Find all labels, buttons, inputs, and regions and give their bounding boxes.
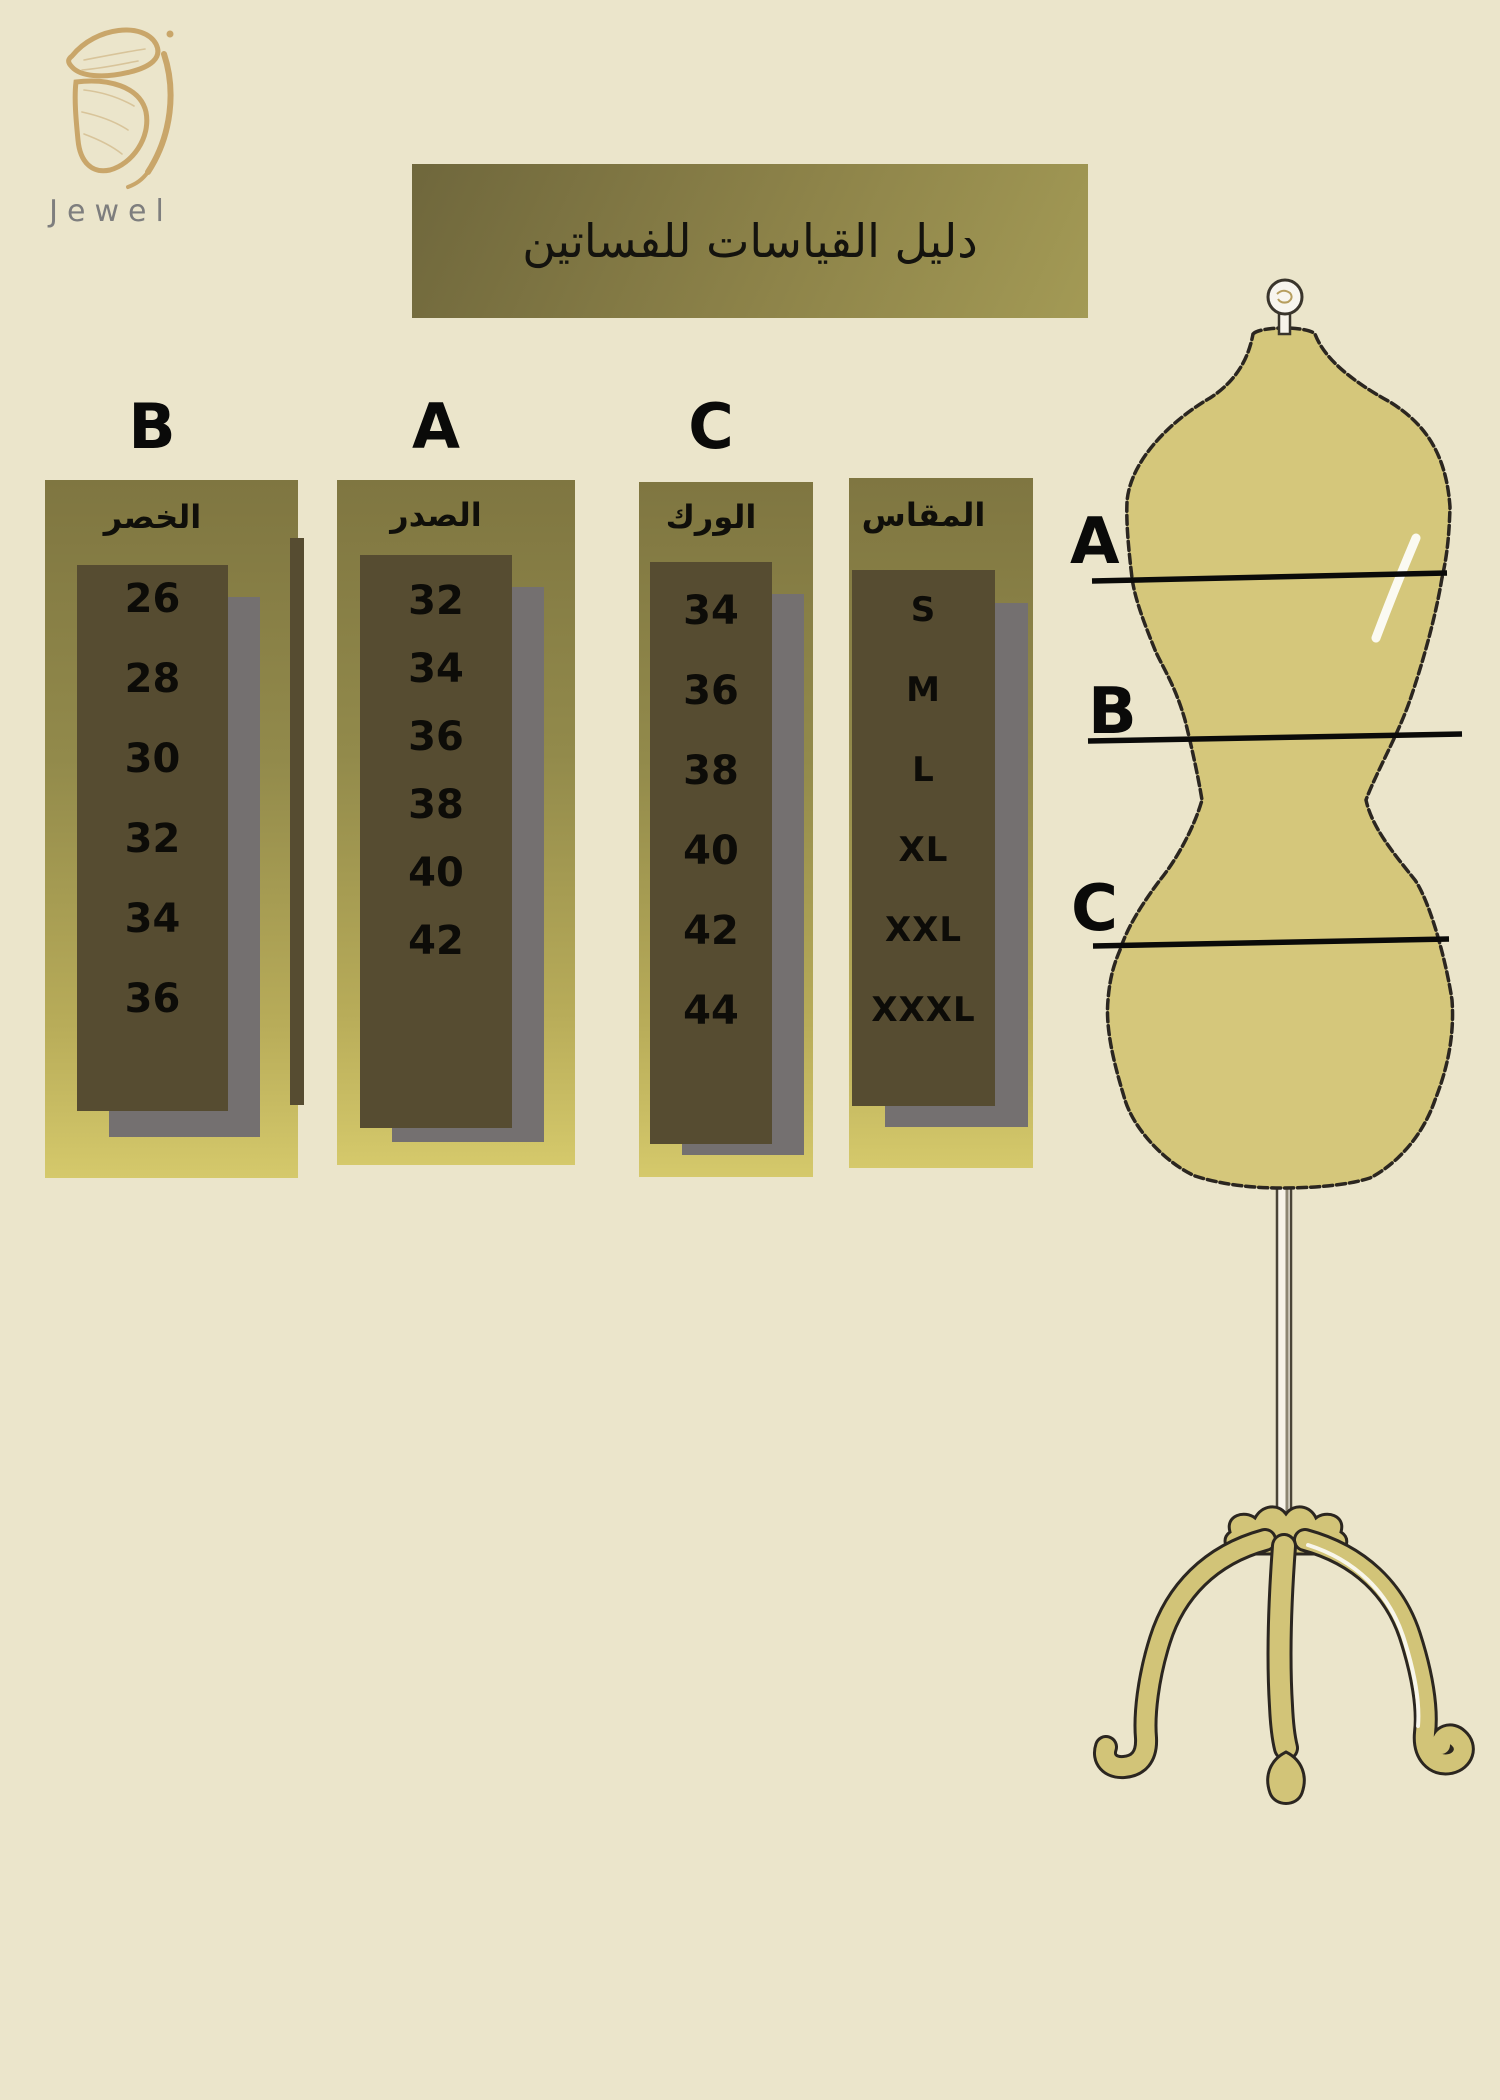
waist-table: الخصر 26 28 30 32 34 36 — [45, 480, 298, 1178]
mannequin-body — [1107, 328, 1452, 1188]
hip-table-header: الورك — [650, 498, 772, 536]
mannequin-pole — [1277, 1140, 1291, 1540]
table-cell: 38 — [683, 743, 739, 799]
mannequin-knob-icon — [1268, 280, 1302, 334]
table-cell: XXXL — [871, 982, 975, 1038]
page-title: دليل القياسات للفساتين — [522, 214, 978, 268]
table-cell: 26 — [125, 571, 181, 627]
column-letter-waist: B — [82, 390, 222, 463]
table-cell: 34 — [683, 583, 739, 639]
table-cell: 40 — [683, 823, 739, 879]
waist-table-values: 26 28 30 32 34 36 — [77, 565, 228, 1111]
table-cell: 28 — [125, 651, 181, 707]
table-cell: L — [912, 742, 935, 798]
size-guide-page: Jewel دليل القياسات للفساتين B A C الخصر… — [0, 0, 1500, 2100]
hip-table: الورك 34 36 38 40 42 44 — [639, 482, 813, 1177]
title-banner: دليل القياسات للفساتين — [412, 164, 1088, 318]
hip-table-values: 34 36 38 40 42 44 — [650, 562, 772, 1144]
table-cell: S — [911, 582, 937, 638]
table-cell: 44 — [683, 983, 739, 1039]
table-cell: 32 — [408, 573, 464, 629]
table-cell: 42 — [408, 913, 464, 969]
table-cell: 42 — [683, 903, 739, 959]
table-cell: 34 — [125, 891, 181, 947]
table-cell: XXL — [885, 902, 962, 958]
chest-table-values: 32 34 36 38 40 42 — [360, 555, 512, 1128]
measurement-line-waist — [1088, 734, 1462, 741]
column-letter-chest: A — [366, 390, 506, 463]
table-cell: 36 — [683, 663, 739, 719]
chest-table-header: الصدر — [360, 496, 512, 534]
table-cell: 32 — [125, 811, 181, 867]
table-cell: M — [906, 662, 941, 718]
table-cell: 40 — [408, 845, 464, 901]
table-cell: 30 — [125, 731, 181, 787]
column-letter-hip: C — [641, 390, 781, 463]
brand-name: Jewel — [26, 194, 196, 229]
size-table: المقاس S M L XL XXL XXXL — [849, 478, 1033, 1168]
size-table-values: S M L XL XXL XXXL — [852, 570, 995, 1106]
chest-table: الصدر 32 34 36 38 40 42 — [337, 480, 575, 1165]
butterfly-wing-icon — [50, 18, 190, 196]
mannequin-label-hip: C — [1071, 872, 1118, 946]
mannequin-base — [1105, 1507, 1463, 1804]
waist-table-header: الخصر — [77, 498, 228, 536]
waist-table-edge-strip — [290, 538, 304, 1105]
table-cell: 36 — [125, 971, 181, 1027]
table-cell: XL — [899, 822, 949, 878]
table-cell: 34 — [408, 641, 464, 697]
table-cell: 38 — [408, 777, 464, 833]
mannequin-figure: A B C — [1050, 270, 1500, 1830]
mannequin-label-bust: A — [1070, 505, 1120, 579]
table-cell: 36 — [408, 709, 464, 765]
size-table-header: المقاس — [852, 496, 995, 534]
